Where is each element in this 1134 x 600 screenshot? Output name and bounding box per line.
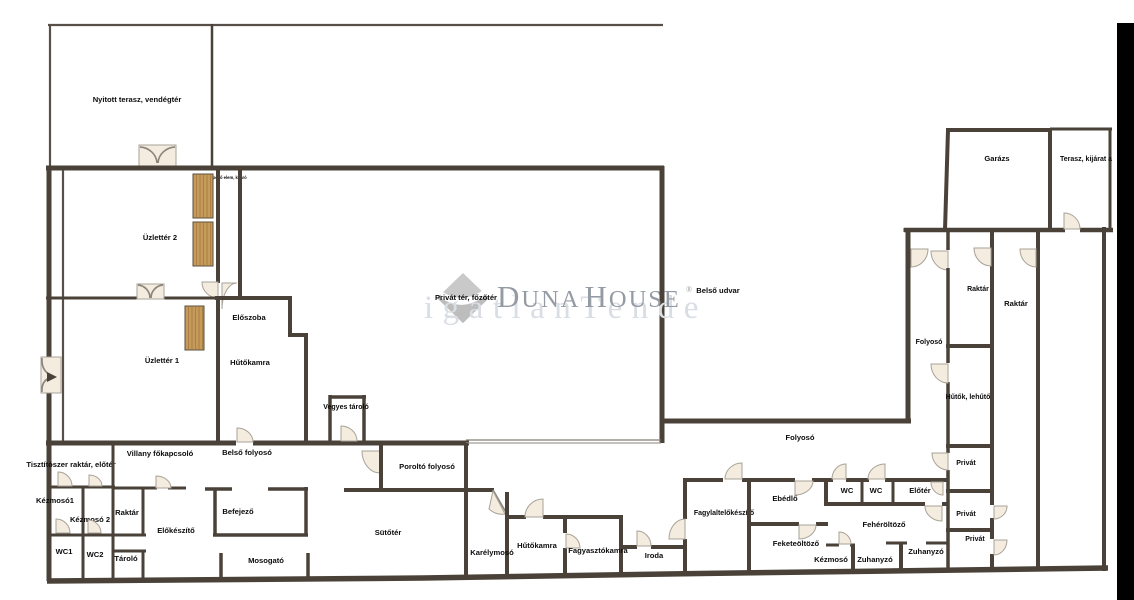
svg-text:Zuhanyzó: Zuhanyzó [908,547,944,556]
svg-text:WC: WC [841,486,854,495]
svg-text:Tisztítószer raktár, előtér: Tisztítószer raktár, előtér [26,460,115,469]
svg-text:Tároló: Tároló [114,554,138,563]
svg-text:Poroltó folyosó: Poroltó folyosó [399,462,455,471]
svg-text:Hűtőkamra: Hűtőkamra [230,358,270,367]
svg-text:WC: WC [870,486,883,495]
svg-text:Előszoba: Előszoba [232,313,266,322]
svg-text:Fagylaltelőkészítő: Fagylaltelőkészítő [694,510,754,517]
svg-text:Terasz, kijárat a: Terasz, kijárat a [1060,156,1112,163]
svg-text:Privát: Privát [956,511,976,518]
svg-text:Fagyasztókamra: Fagyasztókamra [568,546,628,555]
svg-text:Folyosó: Folyosó [916,339,943,346]
svg-text:Belső udvar: Belső udvar [696,286,740,295]
svg-text:Villany főkapcsoló: Villany főkapcsoló [127,449,194,458]
svg-text:Hűtők, lehűtő: Hűtők, lehűtő [946,394,991,401]
svg-text:Feketeöltöző: Feketeöltöző [773,539,820,548]
svg-text:Kézmosó1: Kézmosó1 [36,496,75,505]
svg-text:WC1: WC1 [56,547,74,556]
svg-text:Ebédlő: Ebédlő [772,494,798,503]
svg-text:Nyitott terasz, vendégtér: Nyitott terasz, vendégtér [93,95,182,104]
svg-text:Befejező: Befejező [222,507,254,516]
svg-text:Garázs: Garázs [984,154,1009,163]
svg-text:Folyosó: Folyosó [785,433,814,442]
svg-text:Kézmosó: Kézmosó [814,555,848,564]
svg-text:Előkészítő: Előkészítő [157,526,195,535]
svg-text:Hűtőkamra: Hűtőkamra [517,541,557,550]
svg-text:Privát: Privát [965,536,985,543]
svg-text:Üzlettér 1: Üzlettér 1 [145,356,180,365]
svg-text:Belső folyosó: Belső folyosó [222,448,272,457]
svg-text:WC2: WC2 [87,550,104,559]
svg-text:Üzlettér 2: Üzlettér 2 [143,233,177,242]
svg-text:Iroda: Iroda [645,551,664,560]
svg-text:Privát: Privát [956,460,976,467]
svg-text:Raktár: Raktár [115,508,139,517]
svg-text:Vegyes tároló: Vegyes tároló [323,404,369,411]
svg-text:Privát tér, főzőtér: Privát tér, főzőtér [435,293,497,302]
svg-text:Raktár: Raktár [1004,299,1028,308]
svg-text:Raktár: Raktár [967,286,989,293]
svg-text:Mosogató: Mosogató [248,556,284,565]
svg-text:Sütőtér: Sütőtér [375,528,402,537]
svg-text:Fehéröltöző: Fehéröltöző [862,520,905,529]
svg-text:®: ® [686,285,692,294]
svg-text:Karélymosó: Karélymosó [470,548,514,557]
svg-text:Előtér: Előtér [909,486,931,495]
svg-text:Zuhanyzó: Zuhanyzó [857,555,893,564]
